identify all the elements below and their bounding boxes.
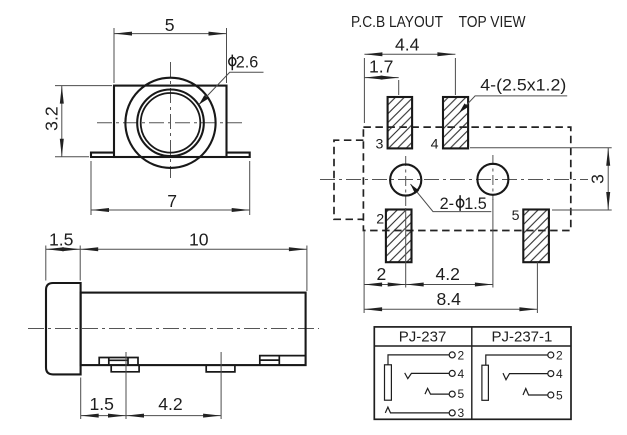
svg-text:2.6: 2.6 [236,54,259,72]
svg-text:1.5: 1.5 [90,394,115,414]
svg-text:4.4: 4.4 [395,35,420,55]
svg-text:4.2: 4.2 [158,394,182,414]
svg-text:TOP VIEW: TOP VIEW [459,14,527,31]
svg-text:5: 5 [512,208,520,224]
svg-text:5: 5 [556,388,563,402]
svg-text:PJ-237-1: PJ-237-1 [492,329,553,346]
svg-text:3: 3 [588,174,608,184]
svg-text:1.5: 1.5 [49,230,74,250]
svg-text:7: 7 [167,191,177,211]
svg-text:PJ-237: PJ-237 [399,329,447,346]
svg-text:1.7: 1.7 [369,57,393,77]
svg-text:5: 5 [458,387,465,401]
svg-text:3.2: 3.2 [42,106,62,130]
svg-text:8.4: 8.4 [437,289,462,309]
svg-text:4: 4 [458,367,465,381]
svg-text:2-: 2- [440,195,454,213]
svg-text:3: 3 [376,136,384,152]
svg-text:2: 2 [377,264,387,284]
svg-text:5: 5 [165,15,175,35]
svg-text:2: 2 [376,212,384,228]
svg-text:3: 3 [458,406,465,420]
svg-text:2: 2 [458,348,465,362]
svg-text:4-(2.5x1.2): 4-(2.5x1.2) [480,77,566,95]
svg-text:10: 10 [189,229,209,249]
svg-text:4: 4 [431,136,439,152]
svg-text:4: 4 [556,367,563,381]
svg-text:4.2: 4.2 [436,264,460,284]
svg-text:1.5: 1.5 [464,195,487,213]
svg-text:P.C.B LAYOUT: P.C.B LAYOUT [351,14,443,31]
svg-text:2: 2 [556,348,563,362]
